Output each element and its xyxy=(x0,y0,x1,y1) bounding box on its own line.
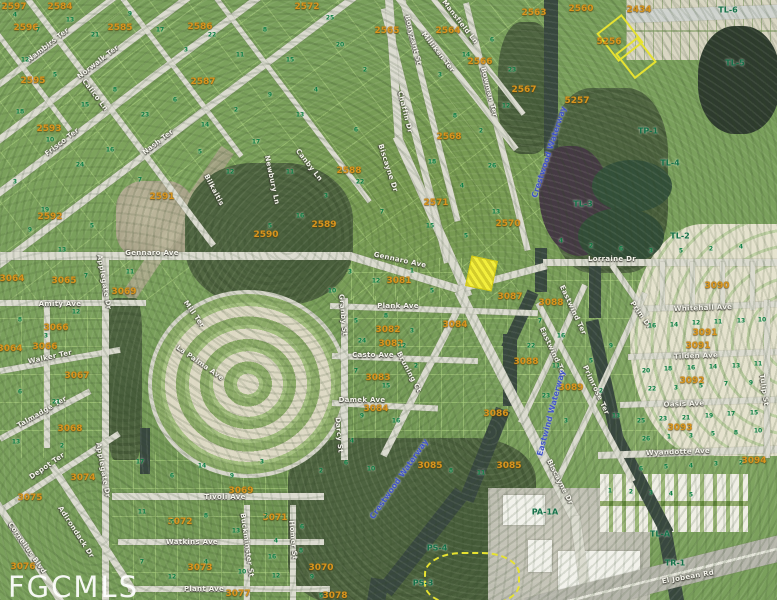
street-label-bonyzant-st: Bonyzant St xyxy=(403,14,423,65)
lot-label-3: 3 xyxy=(13,179,17,186)
street-label-amity-ave: Amity Ave xyxy=(39,300,82,308)
lot-label-2: 2 xyxy=(479,128,483,135)
lot-label-1: 1 xyxy=(608,488,612,495)
lot-label-23: 23 xyxy=(508,67,516,74)
area-label-tl-2: TL-2 xyxy=(670,232,689,241)
labels-layer: Nambirs TerNorwalk TerCalico LnFrisco Te… xyxy=(0,0,777,600)
street-label-el-jobean-rd: El Jobean Rd xyxy=(661,568,715,585)
area-label-tr-1: TR-1 xyxy=(665,559,686,568)
lot-label-17: 17 xyxy=(136,459,144,466)
lot-label-9: 9 xyxy=(749,380,753,387)
block-label-2572: 2572 xyxy=(294,2,319,12)
lot-label-13: 13 xyxy=(612,413,620,420)
street-label-la-palma-ave: La Palma Ave xyxy=(175,344,226,383)
lot-label-16: 16 xyxy=(687,365,695,372)
lot-label-5: 5 xyxy=(170,519,174,526)
block-label-3068: 3068 xyxy=(57,424,82,434)
street-label-oasis-ave: Oasis Ave xyxy=(663,399,704,408)
lot-label-16: 16 xyxy=(648,323,656,330)
lot-label-18: 18 xyxy=(428,159,436,166)
lot-label-13: 13 xyxy=(66,17,74,24)
area-label-tl-6: TL-6 xyxy=(718,6,737,15)
lot-label-3: 3 xyxy=(260,459,264,466)
street-label-mansfield-ln: Mansfield Ln xyxy=(440,0,480,46)
street-label-granby-st: Granby St xyxy=(337,294,349,337)
lot-label-19: 19 xyxy=(41,207,49,214)
block-label-3084: 3084 xyxy=(363,404,388,414)
lot-label-5: 5 xyxy=(664,464,668,471)
lot-label-13: 13 xyxy=(296,112,304,119)
street-label-biscayne-dr: Biscayne Dr xyxy=(376,143,399,193)
lot-label-4: 4 xyxy=(669,491,673,498)
lot-label-6: 6 xyxy=(173,97,177,104)
lot-label-11: 11 xyxy=(477,470,485,477)
block-label-3090: 3090 xyxy=(704,281,729,291)
lot-label-25: 25 xyxy=(637,418,645,425)
lot-label-7: 7 xyxy=(140,559,144,566)
aerial-plat-map: Nambirs TerNorwalk TerCalico LnFrisco Te… xyxy=(0,0,777,600)
lot-label-12: 12 xyxy=(502,103,510,110)
lot-label-8: 8 xyxy=(18,317,22,324)
lot-label-9: 9 xyxy=(268,92,272,99)
street-label-applegate-dr: Applegate Dr xyxy=(95,254,113,310)
lot-label-14: 14 xyxy=(670,322,678,329)
waterway-label-crestwood-waterway: Crestwood Waterway xyxy=(368,437,430,520)
lot-label-14: 14 xyxy=(198,463,206,470)
block-label-2588: 2588 xyxy=(336,166,361,176)
street-label-biscayne-dr: Biscayne Dr xyxy=(545,458,575,506)
lot-label-9: 9 xyxy=(128,11,132,18)
lot-label-5: 5 xyxy=(464,233,468,240)
lot-label-9: 9 xyxy=(310,574,314,581)
block-label-3069: 3069 xyxy=(111,287,136,297)
waterway-label-crestwood-waterway: Crestwood Waterway xyxy=(530,105,568,199)
block-label-3078: 3078 xyxy=(322,591,347,600)
block-label-3082: 3082 xyxy=(375,325,400,335)
lot-label-11: 11 xyxy=(236,52,244,59)
lot-label-7: 7 xyxy=(724,381,728,388)
lot-label-7: 7 xyxy=(84,273,88,280)
block-label-2563: 2563 xyxy=(521,8,546,18)
area-label-tl-3: TL-3 xyxy=(573,200,592,209)
street-label-watkins-ave: Watkins Ave xyxy=(166,538,218,546)
block-label-2570: 2570 xyxy=(495,219,520,229)
lot-label-11: 11 xyxy=(552,363,560,370)
lot-label-10: 10 xyxy=(46,137,54,144)
lot-label-22: 22 xyxy=(356,179,364,186)
lot-label-25: 25 xyxy=(326,15,334,22)
lot-label-5: 5 xyxy=(268,223,272,230)
block-label-2590: 2590 xyxy=(253,230,278,240)
lot-label-21: 21 xyxy=(682,415,690,422)
lot-label-8: 8 xyxy=(113,87,117,94)
lot-label-4: 4 xyxy=(314,87,318,94)
lot-label-23: 23 xyxy=(659,416,667,423)
block-label-3066: 3066 xyxy=(32,342,57,352)
block-label-2567: 2567 xyxy=(511,85,536,95)
lot-label-10: 10 xyxy=(367,466,375,473)
block-label-3077: 3077 xyxy=(225,589,250,599)
lot-label-26: 26 xyxy=(488,163,496,170)
lot-label-19: 19 xyxy=(705,413,713,420)
block-label-3088: 3088 xyxy=(538,298,563,308)
block-label-2565: 2565 xyxy=(374,26,399,36)
lot-label-22: 22 xyxy=(208,32,216,39)
lot-label-8: 8 xyxy=(734,430,738,437)
lot-label-16: 16 xyxy=(106,147,114,154)
street-label-homer-st: Homer St xyxy=(287,520,298,560)
block-label-2589: 2589 xyxy=(311,220,336,230)
lot-label-1: 1 xyxy=(410,268,414,275)
lot-label-8: 8 xyxy=(384,313,388,320)
lot-label-3: 3 xyxy=(649,248,653,255)
area-label-ps-3: PS-3 xyxy=(413,579,434,588)
lot-label-7: 7 xyxy=(538,318,542,325)
lot-label-2: 2 xyxy=(599,388,603,395)
block-label-3093: 3093 xyxy=(667,423,692,433)
lot-label-7: 7 xyxy=(138,177,142,184)
lot-label-7: 7 xyxy=(36,27,40,34)
lot-label-5: 5 xyxy=(319,593,323,600)
lot-label-16: 16 xyxy=(392,418,400,425)
block-label-3066: 3066 xyxy=(43,323,68,333)
lot-label-2: 2 xyxy=(739,460,743,467)
lot-label-6: 6 xyxy=(619,246,623,253)
street-label-gennaro-ave: Gennaro Ave xyxy=(373,251,427,270)
lot-label-2: 2 xyxy=(629,489,633,496)
block-label-3083: 3083 xyxy=(365,373,390,383)
area-label-tl-4: TL-4 xyxy=(660,159,679,168)
lot-label-12: 12 xyxy=(692,320,700,327)
lot-label-2: 2 xyxy=(363,67,367,74)
street-label-lorraine-dr: Lorraine Dr xyxy=(588,255,636,263)
block-label-2434: 2434 xyxy=(626,5,651,15)
lot-label-16: 16 xyxy=(268,554,276,561)
lot-label-3: 3 xyxy=(689,433,693,440)
lot-label-17: 17 xyxy=(156,27,164,34)
block-label-2586: 2586 xyxy=(187,22,212,32)
block-label-3086: 3086 xyxy=(483,409,508,419)
lot-label-10: 10 xyxy=(238,569,246,576)
street-label-darcy-st: Darcy St xyxy=(333,417,344,453)
lot-label-2: 2 xyxy=(589,243,593,250)
lot-label-6: 6 xyxy=(300,524,304,531)
lot-label-5: 5 xyxy=(430,288,434,295)
lot-label-13: 13 xyxy=(12,439,20,446)
street-label-plank-ave: Plank Ave xyxy=(377,302,419,310)
lot-label-23: 23 xyxy=(141,112,149,119)
watermark: FGCMLS xyxy=(8,570,139,600)
lot-label-6: 6 xyxy=(490,37,494,44)
lot-label-9: 9 xyxy=(609,343,613,350)
lot-label-7: 7 xyxy=(380,209,384,216)
lot-label-14: 14 xyxy=(201,122,209,129)
block-label-2568: 2568 xyxy=(436,132,461,142)
area-label-tl-a: TL-A xyxy=(650,530,670,539)
block-label-3069: 3069 xyxy=(228,486,253,496)
street-label-bowman-ter: Bowman Ter xyxy=(479,66,499,118)
street-label-tulip-st: Tulip St xyxy=(758,374,770,407)
block-label-3091: 3091 xyxy=(685,341,710,351)
block-label-3064: 3064 xyxy=(0,344,23,354)
lot-label-18: 18 xyxy=(16,109,24,116)
lot-label-4: 4 xyxy=(13,12,17,19)
lot-label-8: 8 xyxy=(204,513,208,520)
lot-label-11: 11 xyxy=(714,319,722,326)
lot-label-15: 15 xyxy=(382,383,390,390)
block-label-5257: 5257 xyxy=(564,96,589,106)
lot-label-26: 26 xyxy=(642,436,650,443)
lot-label-20: 20 xyxy=(642,368,650,375)
lot-label-11: 11 xyxy=(126,269,134,276)
lot-label-11: 11 xyxy=(286,169,294,176)
lot-label-15: 15 xyxy=(286,57,294,64)
lot-label-24: 24 xyxy=(76,162,84,169)
area-label-tp-1: TP-1 xyxy=(638,127,658,136)
lot-label-12: 12 xyxy=(272,573,280,580)
lot-label-17: 17 xyxy=(252,139,260,146)
lot-label-5: 5 xyxy=(589,358,593,365)
lot-label-3: 3 xyxy=(438,72,442,79)
lot-label-12: 12 xyxy=(398,343,406,350)
lot-label-4: 4 xyxy=(559,238,563,245)
lot-label-7: 7 xyxy=(354,368,358,375)
street-label-casto-ave: Casto Ave xyxy=(352,351,394,359)
lot-label-5: 5 xyxy=(90,223,94,230)
street-label-bilkaitis: Bilkaitis xyxy=(202,173,225,207)
block-label-2587: 2587 xyxy=(190,77,215,87)
lot-label-21: 21 xyxy=(91,32,99,39)
block-label-5256: 5256 xyxy=(596,37,621,47)
street-label-bruning-ct: Bruning Ct xyxy=(395,350,423,394)
lot-label-9: 9 xyxy=(28,227,32,234)
lot-label-13: 13 xyxy=(232,528,240,535)
block-label-2564: 2564 xyxy=(435,26,460,36)
lot-label-5: 5 xyxy=(699,383,703,390)
lot-label-5: 5 xyxy=(689,492,693,499)
lot-label-22: 22 xyxy=(648,386,656,393)
block-label-3067: 3067 xyxy=(64,371,89,381)
lot-label-3: 3 xyxy=(184,47,188,54)
lot-label-13: 13 xyxy=(732,363,740,370)
lot-label-13: 13 xyxy=(58,247,66,254)
lot-label-8: 8 xyxy=(449,468,453,475)
street-label-milliken-ter: Milliken Ter xyxy=(420,30,456,73)
lot-label-2: 2 xyxy=(264,513,268,520)
ps3-dashed-boundary xyxy=(424,552,520,600)
street-label-chaffin-dr: Chaffin Dr xyxy=(396,90,414,134)
block-label-3075: 3075 xyxy=(17,493,42,503)
lot-label-8: 8 xyxy=(299,548,303,555)
lot-label-5: 5 xyxy=(679,248,683,255)
lot-label-14: 14 xyxy=(462,52,470,59)
block-label-2592: 2592 xyxy=(37,212,62,222)
block-label-2584: 2584 xyxy=(47,2,72,12)
lot-label-24: 24 xyxy=(358,338,366,345)
block-label-2596: 2596 xyxy=(13,23,38,33)
lot-label-3: 3 xyxy=(714,461,718,468)
lot-label-6: 6 xyxy=(354,127,358,134)
lot-label-20: 20 xyxy=(336,42,344,49)
block-label-3091: 3091 xyxy=(692,328,717,338)
area-label-tl-5: TL-5 xyxy=(725,59,744,68)
street-label-whitehall-ave: Whitehall Ave xyxy=(674,303,733,313)
street-label-plant-ave: Plant Ave xyxy=(184,585,224,593)
lot-label-9: 9 xyxy=(360,413,364,420)
lot-label-11: 11 xyxy=(138,509,146,516)
lot-label-12: 12 xyxy=(72,309,80,316)
lot-label-18: 18 xyxy=(664,366,672,373)
lot-label-3: 3 xyxy=(674,385,678,392)
lot-label-16: 16 xyxy=(296,213,304,220)
lot-label-23: 23 xyxy=(542,393,550,400)
block-label-2571: 2571 xyxy=(423,198,448,208)
block-label-2593: 2593 xyxy=(36,124,61,134)
block-label-3065: 3065 xyxy=(51,276,76,286)
lot-label-3: 3 xyxy=(410,328,414,335)
lot-label-3: 3 xyxy=(564,418,568,425)
street-label-gennaro-ave: Gennaro Ave xyxy=(125,249,179,257)
block-label-3070: 3070 xyxy=(308,563,333,573)
lot-label-2: 2 xyxy=(60,443,64,450)
block-label-3064: 3064 xyxy=(0,274,25,284)
lot-label-3: 3 xyxy=(348,269,352,276)
street-label-applegate-dr: Applegate Dr xyxy=(94,442,112,498)
street-label-mill-ter: Mill Ter xyxy=(182,299,206,329)
street-label-primrose-ter: Primrose Ter xyxy=(581,364,611,416)
block-label-2585: 2585 xyxy=(107,23,132,33)
lot-label-10: 10 xyxy=(758,317,766,324)
lot-label-3: 3 xyxy=(324,193,328,200)
street-label-damek-ave: Damek Ave xyxy=(339,396,386,404)
block-label-3094: 3094 xyxy=(741,456,766,466)
lot-label-14: 14 xyxy=(709,364,717,371)
block-label-3087: 3087 xyxy=(497,292,522,302)
block-label-3074: 3074 xyxy=(70,473,95,483)
lot-label-12: 12 xyxy=(21,57,29,64)
block-label-2591: 2591 xyxy=(149,192,174,202)
street-label-tilden-ave: Tilden Ave xyxy=(674,351,718,361)
lot-label-6: 6 xyxy=(18,389,22,396)
lot-label-5: 5 xyxy=(198,149,202,156)
lot-label-10: 10 xyxy=(754,428,762,435)
block-label-2597: 2597 xyxy=(1,2,26,12)
street-label-norwalk-ter: Norwalk Ter xyxy=(76,43,120,80)
lot-label-13: 13 xyxy=(737,318,745,325)
lot-label-9: 9 xyxy=(230,473,234,480)
street-label-depot-ter: Depot Ter xyxy=(28,451,66,481)
lot-label-3: 3 xyxy=(649,490,653,497)
lot-label-8: 8 xyxy=(263,27,267,34)
street-label-wyandotte-ave: Wyandotte Ave xyxy=(646,447,710,457)
lot-label-2: 2 xyxy=(319,468,323,475)
lot-label-12: 12 xyxy=(226,169,234,176)
lot-label-6: 6 xyxy=(170,473,174,480)
street-label-eastwind-ter: Eastwind Ter xyxy=(558,284,588,336)
lot-label-10: 10 xyxy=(328,288,336,295)
block-label-3073: 3073 xyxy=(187,563,212,573)
area-label-ps-4: PS-4 xyxy=(427,544,448,553)
lot-label-2: 2 xyxy=(414,363,418,370)
lot-label-4: 4 xyxy=(689,463,693,470)
lot-label-2: 2 xyxy=(709,246,713,253)
lot-label-12: 12 xyxy=(168,574,176,581)
street-label-nash-ter: Nash Ter xyxy=(141,128,175,157)
lot-label-4: 4 xyxy=(739,244,743,251)
lot-label-4: 4 xyxy=(460,183,464,190)
lot-label-5: 5 xyxy=(354,318,358,325)
street-label-canby-ln: Canby Ln xyxy=(294,147,324,182)
lot-label-6: 6 xyxy=(639,466,643,473)
lot-label-13: 13 xyxy=(492,209,500,216)
block-label-2566: 2566 xyxy=(467,57,492,67)
lot-label-5: 5 xyxy=(711,431,715,438)
lot-label-17: 17 xyxy=(727,411,735,418)
block-label-3085: 3085 xyxy=(496,461,521,471)
block-label-2560: 2560 xyxy=(568,4,593,14)
lot-label-4: 4 xyxy=(350,438,354,445)
lot-label-15: 15 xyxy=(426,223,434,230)
lot-label-21: 21 xyxy=(52,399,60,406)
lot-label-16: 16 xyxy=(557,333,565,340)
lot-label-22: 22 xyxy=(527,343,535,350)
lot-label-1: 1 xyxy=(667,434,671,441)
lot-label-3: 3 xyxy=(44,333,48,340)
area-label-pa-1a: PA-1A xyxy=(532,508,558,517)
lot-label-11: 11 xyxy=(754,361,762,368)
lot-label-8: 8 xyxy=(453,113,457,120)
street-label-newbury-ln: Newbury Ln xyxy=(263,155,281,206)
lot-label-15: 15 xyxy=(750,410,758,417)
lot-label-5: 5 xyxy=(53,72,57,79)
lot-label-2: 2 xyxy=(234,107,238,114)
block-label-3085: 3085 xyxy=(417,461,442,471)
block-label-3088: 3088 xyxy=(513,357,538,367)
waterway-label-eastwind-waterway: Eastwind Waterway xyxy=(535,369,567,457)
lot-label-4: 4 xyxy=(274,538,278,545)
lot-label-4: 4 xyxy=(204,559,208,566)
block-label-3081: 3081 xyxy=(386,276,411,286)
block-label-3084: 3084 xyxy=(442,320,467,330)
lot-label-12: 12 xyxy=(372,278,380,285)
lot-label-15: 15 xyxy=(81,102,89,109)
block-label-2595: 2595 xyxy=(20,76,45,86)
lot-label-6: 6 xyxy=(344,460,348,467)
street-label-adirondack-dr: Adirondack Dr xyxy=(56,505,96,560)
